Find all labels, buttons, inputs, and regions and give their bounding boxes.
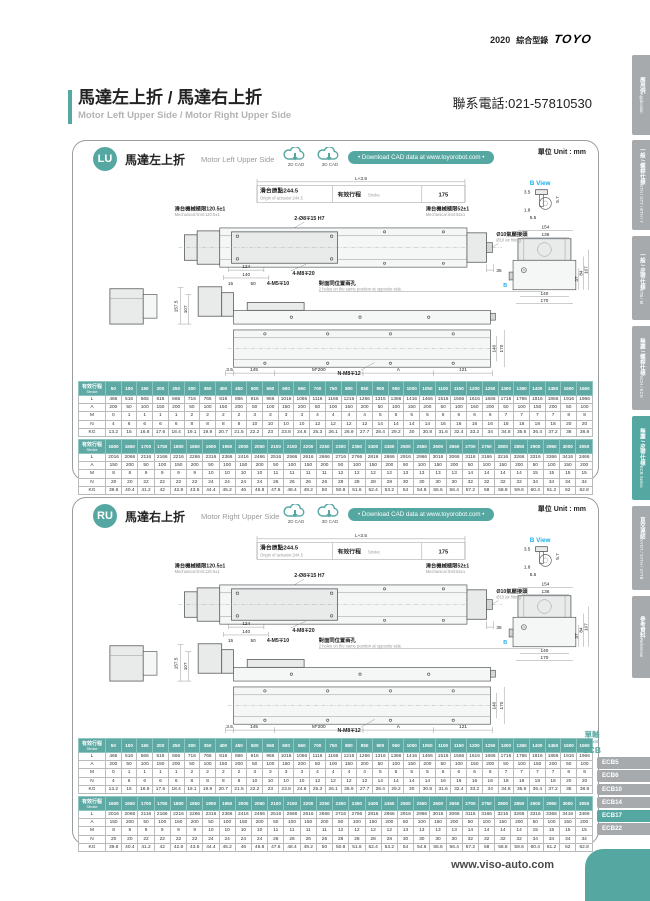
dim-cell: 2766 [349,453,365,461]
dim-cell: 6 [153,777,169,785]
dim-cell: 10 [294,420,310,428]
dim-cell: 12 [325,777,341,785]
dim-cell: 3216 [495,810,511,818]
stroke-value: 900 [372,739,388,753]
dim-cell: 10 [278,420,294,428]
panel-code-badge: LU [93,147,117,171]
dim-cell: 1 [153,412,169,420]
dim-cell: 28 [349,835,365,843]
dim-cell: 50 [333,819,349,827]
sidebar-tab-reference[interactable]: 參考資料Reference [632,596,650,678]
dim-cell: 26 [300,835,316,843]
dim-cell: 150 [235,819,251,827]
cad-icons: 2D CAD 3D CAD [283,147,343,167]
dim-cell: 150 [430,462,446,470]
dim-cell: 2616 [300,453,316,461]
dim-cell: 14 [404,420,420,428]
dim-cell: 150 [215,404,231,412]
catalog-page: 2020 綜合型錄 TOYO 聯系電話:021-57810530 馬達左上折 /… [0,0,650,901]
dim-cell: 12 [341,777,357,785]
dim-cell: 966 [263,753,279,761]
cloud-download-icon [283,504,309,520]
stroke-value: 3050 [576,796,593,810]
product-panel-ru: RU 馬達右上折 Motor Right Upper Side 2D CAD [72,497,599,845]
stroke-table-2: 有效行程Stroke160016501700175018001850190019… [78,439,593,495]
endview-dim-170: 170 [541,298,549,303]
stroke-value: 1300 [498,382,514,396]
dim-cell: 766 [200,396,216,404]
dim-cell: 3316 [527,453,543,461]
dim-cell: 50 [247,404,263,412]
dim-cell: 18 [498,420,514,428]
stroke-value: 2300 [333,439,349,453]
dim-cell: 2016 [106,453,122,461]
dim-cell: 48.4 [284,486,300,494]
dim-140-right: 140 [491,344,496,352]
dim-cell: 14 [495,470,511,478]
dim-cell: 62 [560,486,576,494]
stroke-value: 2200 [300,439,316,453]
row-label: L [79,810,106,818]
dim-cell: 6 [451,769,467,777]
dim-cell: 1 [121,412,137,420]
dim-cell: 4 [341,769,357,777]
cad-2d-download[interactable]: 2D CAD [283,504,309,524]
stroke-value: 250 [168,739,184,753]
dim-cell: 50 [527,462,543,470]
dim-cell: 34.8 [498,428,514,436]
stroke-value: 200 [153,382,169,396]
website-link[interactable]: www.viso-auto.com [451,859,554,871]
dim-cell: 6 [137,777,153,785]
dim-cell: 28 [381,835,397,843]
dim-cell: 28 [333,835,349,843]
dim-cell: 100 [451,404,467,412]
dim-cell: 22 [154,835,170,843]
dim-cell: 516 [121,753,137,761]
origin-label-en: Origin of actuator:244.5 [260,552,304,557]
stroke-value: 1150 [451,382,467,396]
stroke-value: 600 [278,739,294,753]
dim-cell: 61.2 [543,486,559,494]
ecb-nav-item-ecb10[interactable]: ECB10 [597,784,650,796]
dim-total-length: L+3.5 [355,533,367,538]
panel-title-en: Motor Right Upper Side [201,512,279,521]
dim-cell: 50 [333,462,349,470]
b-view-title: B View [530,537,551,544]
stroke-value: 1850 [187,439,203,453]
stroke-value: 450 [231,739,247,753]
dim-cell: 16 [435,777,451,785]
dim-cell: 2566 [284,453,300,461]
dim-cell: 3116 [462,453,478,461]
dim-cell: 200 [511,462,527,470]
dim-cell: 48.4 [284,843,300,851]
dim-cell: 5 [372,412,388,420]
dim-cell: 20 [577,777,593,785]
stroke-value: 2950 [543,439,559,453]
ecb-nav-item-ecb17[interactable]: ECB17 [597,810,650,822]
row-label: KG [79,428,106,436]
dim-cell: 16 [482,420,498,428]
dim-cell: 6 [435,769,451,777]
dim-cell: 100 [263,761,279,769]
row-label: A [79,761,106,769]
dim-cell: 7 [498,769,514,777]
panel-code-badge: RU [93,504,117,528]
dim-175: 175 [438,550,449,556]
table-row: L466516566616666716766816866916966101610… [79,753,593,761]
ecb-nav-item-ecb6[interactable]: ECB6 [597,770,650,782]
dim-cell: 100 [137,761,153,769]
dim-cell: 1766 [514,396,530,404]
dim-cell: 14 [462,470,478,478]
dim-cell: 22.2 [247,428,263,436]
sidebar-tab-gch-ech[interactable]: 無塵 / 螺桿仕樣GCH / ECH [632,326,650,410]
dim-cell: 200 [231,404,247,412]
stroke-value: 2750 [479,796,495,810]
stroke-value: 650 [294,739,310,753]
stroke-value: 750 [325,739,341,753]
dim-cell: 26.1 [325,785,341,793]
dim-cell: 13 [397,827,413,835]
dim-cell: 1916 [561,396,577,404]
dim-cell: 1 [153,769,169,777]
dim-cell: 20 [561,420,577,428]
dim-35: 35 [496,268,502,273]
mech-limit-left-en: Mechanical limit:120.5±1 [175,569,221,574]
dim-cell: 3416 [560,453,576,461]
ecb-nav-item-ecb14[interactable]: ECB14 [597,797,650,809]
page-title-block: 馬達左上折 / 馬達右上折 Motor Left Upper Side / Mo… [68,88,291,121]
stroke-value: 500 [247,382,263,396]
dim-cell: 38 [561,785,577,793]
dim-140: 140 [242,272,250,277]
dim-cell: 100 [543,819,559,827]
stroke-value: 2300 [333,796,349,810]
dim-cell: 2966 [414,453,430,461]
stroke-value: 800 [341,382,357,396]
dim-cell: 20 [106,835,122,843]
dim-cell: 3316 [527,810,543,818]
dim-170-right: 170 [499,344,504,352]
dim-cell: 16 [451,777,467,785]
dim-cell: 4 [341,412,357,420]
sidebar-tab-label-zh: 無塵 / 螺桿仕樣 [638,338,644,376]
dim-cell: 20.7 [215,428,231,436]
dim-cell: 716 [184,396,200,404]
stroke-value: 1400 [529,739,545,753]
dim-cell: 150 [560,819,576,827]
sidebar-tab-label-en: GTH / GTY / ETH / Y [639,184,643,223]
dim-cell: 1516 [435,753,451,761]
dim-cell: 21.5 [231,785,247,793]
dim-cell: 6 [482,412,498,420]
dim-cell: 34 [482,785,498,793]
sidebar-tab-xygt-xyth-xytb[interactable]: 直交連結XYGT / XYTH / XYTB [632,506,650,590]
dim-cell: 6 [153,420,169,428]
stroke-value: 600 [278,382,294,396]
dim-cell: 200 [187,819,203,827]
dim-cell: 2066 [122,453,138,461]
stroke-value: 2400 [365,796,381,810]
mech-limit-right-zh: 滑台機械極限52±1 [426,561,469,569]
sidebar-tab-ecb-series[interactable]: 無塵 / 皮帶仕樣ECB Series [632,416,650,500]
dim-cell: 22 [187,835,203,843]
dim-cell: 6 [467,412,483,420]
dim-cell: 10 [263,420,279,428]
cad-2d-caption: 2D CAD [288,162,305,167]
dim-cell: 2866 [381,453,397,461]
dim-cell: 24.6 [294,785,310,793]
dim-cell: 14 [462,827,478,835]
sidebar-tab-etb-m[interactable]: 一般 / 皮帶仕樣ETB / M [632,236,650,320]
stroke-value: 2050 [251,439,267,453]
dim-cell: 12 [381,470,397,478]
dim-cell: 50 [498,761,514,769]
stroke-value: 900 [372,382,388,396]
contact-phone: 聯系電話:021-57810530 [453,93,592,112]
row-label: N [79,478,106,486]
dim-cell: 50.8 [333,486,349,494]
dim-cell: 41.2 [138,486,154,494]
dim-cell: 5 [420,412,436,420]
cad-2d-download[interactable]: 2D CAD [283,147,309,167]
dim-cell: 2316 [203,453,219,461]
mech-limit-left-zh: 滑台機械極限120.5±1 [175,561,226,569]
dim-cell: 51.6 [349,486,365,494]
sidebar-tab-gth-gty-eth-y[interactable]: 一般 / 螺桿仕樣GTH / GTY / ETH / Y [632,140,650,230]
dim-cell: 150 [153,404,169,412]
dim-cell: 200 [316,819,332,827]
dim-cell: 43.6 [187,843,203,851]
stroke-value: 1000 [404,739,420,753]
dim-cell: 200 [482,761,498,769]
download-cad-pill[interactable]: • Download CAD data at www.toyorobot.com… [348,151,494,164]
dim-cell: 150 [341,761,357,769]
dim-cell: 1066 [294,396,310,404]
dim-cell: 2816 [365,810,381,818]
stroke-value: 2700 [462,796,478,810]
dim-cell: 43.6 [187,486,203,494]
dim-cell: 2466 [251,453,267,461]
dim-cell: 8 [215,777,231,785]
stroke-value: 1700 [138,796,154,810]
table-row: M0111122223333444455556666777788 [79,769,593,777]
endview-dim-107: 107 [584,266,589,274]
stroke-value: 1400 [529,382,545,396]
table-row: KG13.21516.817.618.419.119.920.721.522.2… [79,428,593,436]
row-label: L [79,396,106,404]
b-view-title: B View [530,180,551,187]
dim-cell: 100 [388,404,404,412]
dim-cell: 2 [231,769,247,777]
download-cad-pill[interactable]: • Download CAD data at www.toyorobot.com… [348,508,494,521]
dim-cell: 10 [247,420,263,428]
stroke-value: 2800 [495,796,511,810]
dim-cell: 616 [153,396,169,404]
dim-cell: 20 [122,835,138,843]
row-label: KG [79,843,106,851]
dim-cell: 2866 [381,810,397,818]
sidebar-tab-application[interactable]: 應用例Application [632,55,650,135]
cad-3d-download[interactable]: 3D CAD [317,147,343,167]
dim-cell: 30.8 [420,785,436,793]
dim-cell: 5 [404,412,420,420]
dim-cell: 7 [498,412,514,420]
dim-cell: 14 [388,777,404,785]
sidebar-tab-label-en: XYGT / XYTH / XYTB [639,539,643,579]
ecb-nav-item-ecb22[interactable]: ECB22 [597,823,650,835]
dim-cell: 200 [106,404,122,412]
cad-2d-caption: 2D CAD [288,519,305,524]
dim-cell: 2316 [203,810,219,818]
dim-cell: 150 [467,404,483,412]
dim-cell: 34 [482,428,498,436]
dim-cell: 39.6 [106,843,122,851]
dim-50: 50 [250,638,256,643]
dim-cell: 42 [154,843,170,851]
dim-cell: 1 [137,769,153,777]
sidebar-tab-label-zh: 參考資料 [638,616,644,638]
dim-cell: 32.4 [451,785,467,793]
dim-cell: 60.4 [527,486,543,494]
sidebar-tab-label-en: Reference [639,638,643,657]
dim-cell: 41.2 [138,843,154,851]
dim-cell: 1616 [467,753,483,761]
stroke-value: 100 [121,382,137,396]
table-row: A200501001502005010015020050100150200501… [79,761,593,769]
cad-3d-download[interactable]: 3D CAD [317,504,343,524]
dim-cell: 50 [372,761,388,769]
dim-cell: 13 [446,470,462,478]
dim-cell: 31.6 [435,785,451,793]
dim-cell: 3416 [560,810,576,818]
dim-cell: 12 [333,470,349,478]
dim-157-5: 157.5 [174,657,179,669]
dim-cell: 50 [121,761,137,769]
dim-cell: 150 [430,819,446,827]
dim-cell: 40.4 [122,843,138,851]
dim-cell: 100 [414,819,430,827]
dim-cell: 3266 [511,810,527,818]
dim-cell: 150 [341,404,357,412]
dim-cell: 50 [561,761,577,769]
dim-cell: 2766 [349,810,365,818]
dim-cell: 50 [561,404,577,412]
sidebar-tab-label-en: ECB Series [639,466,643,488]
stroke-value: 1700 [138,439,154,453]
dim-cell: 3016 [430,810,446,818]
dim-cell: 200 [122,462,138,470]
stroke-value: 1950 [219,796,235,810]
dim-cell: 8 [122,470,138,478]
technical-drawing: L+3.5 滑台原點244.5 Origin of actuator:244.5… [78,173,593,379]
dim-cell: 42.8 [170,843,186,851]
stroke-value: 2650 [446,796,462,810]
dim-cell: 200 [187,462,203,470]
dim-cell: 2516 [268,810,284,818]
dim-cell: 50 [462,819,478,827]
page-title: 馬達左上折 / 馬達右上折 [78,88,291,108]
dim-cell: 14 [420,420,436,428]
stroke-value: 250 [168,382,184,396]
dim-cell: 1716 [498,396,514,404]
bview-dim-5-5: 5.5 [530,215,537,220]
table-row: N466668888101010101212121214141414161616… [79,777,593,785]
cloud-download-icon [283,147,309,163]
dim-cell: 58 [479,843,495,851]
dim-cell: 100 [414,462,430,470]
stroke-value: 1350 [514,739,530,753]
dim-cell: 200 [381,462,397,470]
holes-top-label: 2-Ø8∓15 H7 [294,216,324,222]
stroke-value: 2900 [527,439,543,453]
dim-cell: 200 [420,761,436,769]
dim-cell: 2266 [187,810,203,818]
stroke-header-cell: 有效行程Stroke [79,382,106,396]
dim-cell: 3116 [462,810,478,818]
dim-cell: 6 [467,769,483,777]
dim-cell: 1616 [467,396,483,404]
dim-cell: 150 [106,819,122,827]
dim-cell: 2566 [284,810,300,818]
endview-dim-154: 154 [542,224,550,229]
dim-cell: 2916 [397,810,413,818]
dim-cell: 1266 [357,396,373,404]
dim-cell: 866 [231,396,247,404]
dim-cell: 22 [170,835,186,843]
dim-cell: 9 [187,827,203,835]
cloud-download-icon [317,147,343,163]
ecb-nav-item-ecb5[interactable]: ECB5 [597,757,650,769]
dim-cell: 18 [545,777,561,785]
dim-cell: 2116 [138,453,154,461]
dim-cell: 47.6 [268,843,284,851]
table-row: L201620662116216622162266231623662416246… [79,453,593,461]
stroke-table-2: 有效行程Stroke160016501700175018001850190019… [78,796,593,852]
corner-decoration [585,849,650,901]
dim-cell: 1166 [325,396,341,404]
dim-cell: 8 [200,420,216,428]
row-label: M [79,412,106,420]
row-label: A [79,819,106,827]
dim-cell: 30 [397,835,413,843]
stroke-label-zh: 有效行程 [337,191,361,199]
dim-cell: 62 [560,843,576,851]
dim-cell: 46.8 [251,843,267,851]
dim-cell: 1 [137,412,153,420]
dim-cell: 2966 [414,810,430,818]
dim-cell: 100 [219,819,235,827]
dim-cell: 54.8 [414,486,430,494]
dim-cell: 14 [495,827,511,835]
dim-cell: 10 [219,470,235,478]
stroke-value: 2600 [430,796,446,810]
dim-cell: 2716 [333,453,349,461]
dim-cell: 38 [561,428,577,436]
dim-cell: 4 [357,412,373,420]
dim-cell: 200 [294,404,310,412]
dim-cell: 4 [357,769,373,777]
dim-cell: 1666 [482,396,498,404]
stroke-value: 2750 [479,439,495,453]
dim-cell: 13 [446,827,462,835]
dim-cell: 6 [168,777,184,785]
stroke-value: 500 [247,739,263,753]
bview-dim-1-8: 1.8 [524,564,531,569]
stroke-value: 1350 [514,382,530,396]
